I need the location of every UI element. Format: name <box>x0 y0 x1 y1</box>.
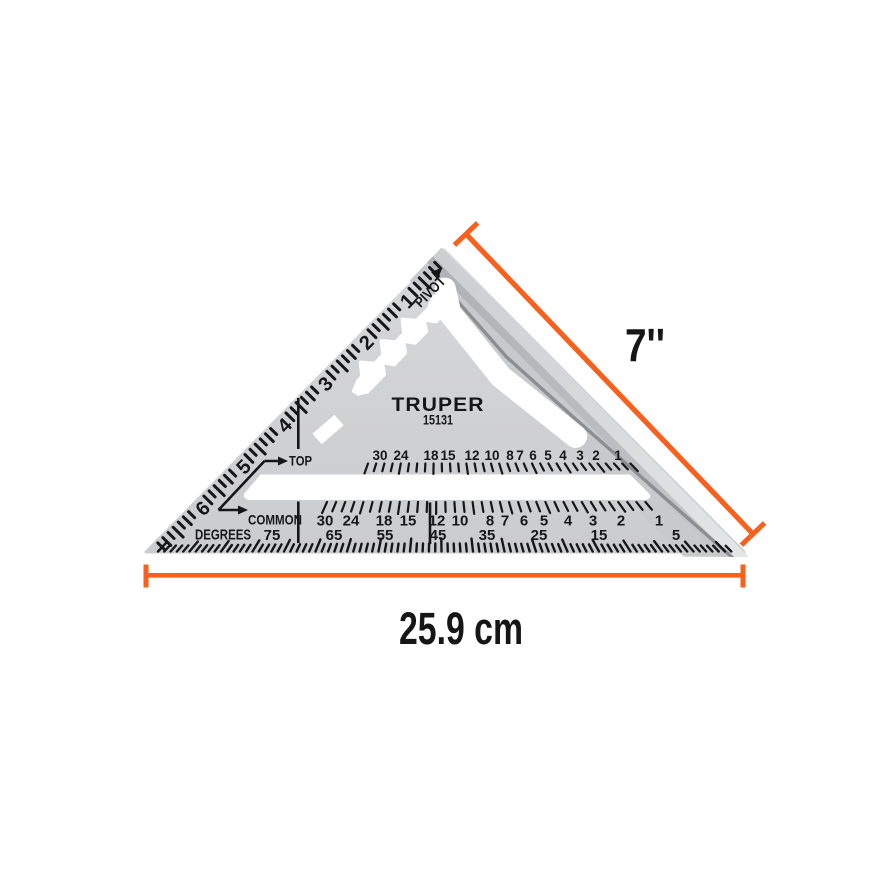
svg-text:DEGREES: DEGREES <box>195 528 251 544</box>
svg-text:25: 25 <box>531 527 548 544</box>
svg-text:7: 7 <box>501 513 509 530</box>
svg-text:TOP: TOP <box>289 454 312 469</box>
svg-text:15131: 15131 <box>423 413 453 428</box>
svg-text:1: 1 <box>655 513 663 530</box>
svg-text:35: 35 <box>479 527 496 544</box>
svg-text:18: 18 <box>423 448 439 463</box>
svg-text:8: 8 <box>506 448 514 463</box>
svg-text:7: 7 <box>516 448 524 463</box>
svg-text:15: 15 <box>440 448 456 463</box>
svg-text:COMMON: COMMON <box>248 513 302 528</box>
svg-text:6: 6 <box>520 513 528 530</box>
svg-text:10: 10 <box>484 448 499 463</box>
svg-text:2: 2 <box>617 513 625 530</box>
svg-text:4: 4 <box>559 448 567 463</box>
svg-text:25.9 cm: 25.9 cm <box>399 603 523 654</box>
svg-text:2: 2 <box>592 448 600 463</box>
svg-text:55: 55 <box>377 527 394 544</box>
svg-text:10: 10 <box>452 513 469 530</box>
svg-text:15: 15 <box>400 513 417 530</box>
svg-text:45: 45 <box>430 527 447 544</box>
svg-text:75: 75 <box>264 527 281 544</box>
svg-text:12: 12 <box>464 448 479 463</box>
svg-text:6: 6 <box>529 448 537 463</box>
svg-text:5: 5 <box>544 448 552 463</box>
svg-text:65: 65 <box>326 527 343 544</box>
svg-text:1: 1 <box>614 448 622 463</box>
svg-text:5: 5 <box>672 527 680 544</box>
svg-text:3: 3 <box>576 448 584 463</box>
svg-text:4: 4 <box>564 513 573 530</box>
svg-text:7'': 7'' <box>625 319 665 371</box>
svg-text:24: 24 <box>343 513 360 530</box>
svg-text:30: 30 <box>372 448 387 463</box>
svg-text:15: 15 <box>591 527 608 544</box>
svg-text:24: 24 <box>393 448 409 463</box>
